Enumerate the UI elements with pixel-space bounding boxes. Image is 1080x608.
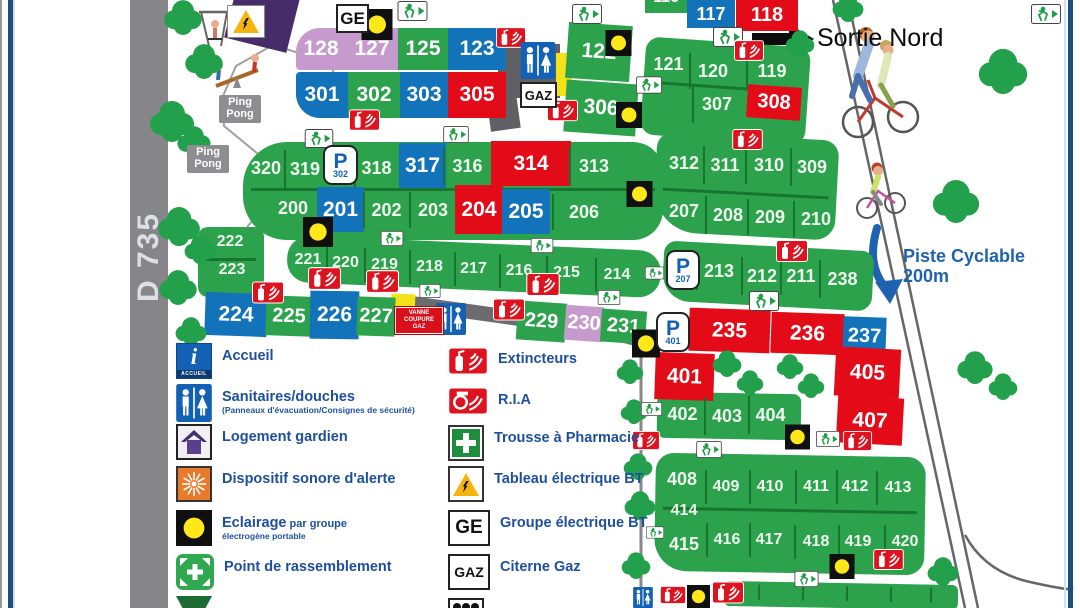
ria-icon — [448, 387, 488, 420]
point-rassemblement-icon — [176, 554, 214, 595]
tableau-electrique-icon — [448, 466, 484, 502]
fire-extinguisher-icon — [367, 271, 399, 293]
lighting-icon — [616, 102, 642, 128]
emergency-exit-icon — [636, 77, 661, 93]
right-border — [1068, 0, 1073, 608]
legend-label: Trousse à Pharmacie — [494, 425, 639, 447]
legend-item-citerne-gaz: GAZCiterne Gaz — [448, 554, 581, 590]
legend-item-point-de-rassemblement: Point de rassemblement — [176, 554, 392, 595]
fire-extinguisher-icon — [494, 299, 525, 320]
lighting-icon — [606, 30, 632, 56]
emergency-exit-icon — [444, 126, 469, 142]
fire-extinguisher-icon — [734, 41, 763, 61]
ping-pong-label: PingPong — [219, 95, 261, 123]
emergency-exit-icon — [398, 2, 427, 21]
fire-extinguisher-icon — [253, 282, 284, 303]
dispositif-sonore-icon — [176, 466, 212, 502]
campsite-map: D 735 1281271251233013023033051223061161… — [0, 0, 1080, 608]
lighting-icon — [176, 510, 212, 551]
ping-pong-label: PingPong — [187, 145, 229, 173]
legend-item-tableau-lectrique-bt: Tableau électrique BT — [448, 466, 644, 502]
emergency-exit-icon — [1032, 5, 1061, 24]
legend-item-logement-gardien: Logement gardien — [176, 424, 348, 460]
emergency-exit-icon — [645, 267, 663, 279]
sanitaires-icon — [633, 587, 653, 608]
fire-extinguisher-icon — [309, 268, 341, 290]
emergency-exit-icon — [697, 441, 722, 457]
trapezoid-icon — [176, 596, 212, 608]
legend-label: Sanitaires/douches(Panneaux d'évacuation… — [222, 384, 415, 415]
legend-label: Citerne Gaz — [500, 554, 581, 576]
emergency-exit-icon — [646, 527, 663, 538]
parking-sign-302: P302 — [323, 145, 358, 185]
parking-sign-207: P207 — [666, 250, 700, 290]
fire-extinguisher-icon — [349, 110, 379, 130]
fire-extinguisher-icon — [733, 129, 763, 149]
legend-item-extincteurs: Extincteurs — [448, 346, 577, 381]
emergency-exit-icon — [573, 5, 602, 24]
pharmacie-icon — [448, 425, 484, 461]
parking-sign-401: P401 — [656, 312, 690, 352]
legend-item-accueil: iACCUEILAccueil — [176, 343, 274, 379]
sortie-nord-label: Sortie Nord — [817, 24, 943, 53]
legend-label: Logement gardien — [222, 424, 348, 446]
citerne-gaz-icon: GAZ — [448, 554, 490, 590]
extincteur-icon — [448, 346, 488, 381]
lighting-icon — [687, 585, 710, 608]
sanitaires-icon — [521, 42, 556, 79]
tableau-electrique-icon — [448, 466, 484, 502]
emergency-exit-icon — [816, 431, 839, 446]
legend-label: Accueil — [222, 343, 274, 365]
electric-warning-icon — [227, 5, 265, 38]
fire-extinguisher-icon — [660, 586, 685, 603]
legend-item-cut — [448, 598, 484, 608]
emergency-exit-icon — [420, 284, 440, 297]
legend-icon-cut — [176, 596, 212, 608]
sanitaires-icon — [176, 384, 212, 427]
groupe-electrique-icon: GE — [448, 510, 490, 546]
accueil-icon: iACCUEIL — [176, 343, 212, 379]
dots-icon — [448, 598, 484, 608]
fire-extinguisher-icon — [777, 241, 808, 262]
legend-label: R.I.A — [498, 387, 531, 409]
gaz-sign: GAZ — [520, 82, 557, 108]
emergency-exit-icon — [598, 290, 620, 304]
legend-label: Groupe électrique BT — [500, 510, 647, 532]
legend-label: Dispositif sonore d'alerte — [222, 466, 395, 488]
legend-item-r-i-a: R.I.A — [448, 387, 531, 420]
legend-label: Tableau électrique BT — [494, 466, 644, 488]
legend-item-cut — [176, 596, 212, 608]
legend-icon-cut — [448, 598, 484, 608]
lighting-icon — [303, 217, 333, 247]
ge-sign: GE — [336, 4, 369, 33]
emergency-exit-icon — [531, 238, 553, 252]
legend-item-dispositif-sonore-d-alerte: Dispositif sonore d'alerte — [176, 466, 395, 502]
lighting-icon — [830, 554, 855, 579]
fire-extinguisher-icon — [527, 274, 559, 296]
fire-extinguisher-icon — [874, 549, 904, 569]
legend-item-sanitaires-douches: Sanitaires/douches(Panneaux d'évacuation… — [176, 384, 415, 427]
emergency-exit-icon — [750, 292, 779, 311]
citerne-gaz-icon: GAZ — [448, 554, 490, 590]
legend-item-groupe-lectrique-bt: GEGroupe électrique BT — [448, 510, 647, 546]
groupe-electrique-icon: GE — [448, 510, 490, 546]
legend-item-trousse-pharmacie: Trousse à Pharmacie — [448, 425, 639, 461]
right-border-inner — [1064, 0, 1066, 608]
fire-extinguisher-icon — [713, 582, 744, 603]
emergency-exit-icon — [641, 402, 661, 415]
emergency-exit-icon — [381, 231, 403, 245]
logement-gardien-icon — [176, 424, 212, 460]
vanne-coupure-gaz-sign: VANNE COUPURE GAZ — [395, 307, 443, 334]
page-edge — [0, 0, 2, 608]
legend-label: Point de rassemblement — [224, 554, 392, 576]
pharmacie-icon — [448, 425, 484, 461]
left-border-inner — [13, 0, 15, 608]
legend-label: Extincteurs — [498, 346, 577, 368]
emergency-exit-icon — [795, 571, 818, 586]
fire-extinguisher-icon — [843, 431, 871, 450]
dispositif-sonore-icon — [176, 466, 212, 502]
piste-cyclable-label: Piste Cyclable 200m — [903, 247, 1063, 287]
legend-label: Eclairage par groupeélectrogène portable — [222, 510, 347, 541]
lighting-icon — [785, 425, 810, 450]
legend-item-eclairage: Eclairage par groupeélectrogène portable — [176, 510, 347, 551]
lighting-icon — [627, 181, 653, 207]
accueil-icon: iACCUEIL — [176, 343, 212, 379]
logement-gardien-icon — [176, 424, 212, 460]
